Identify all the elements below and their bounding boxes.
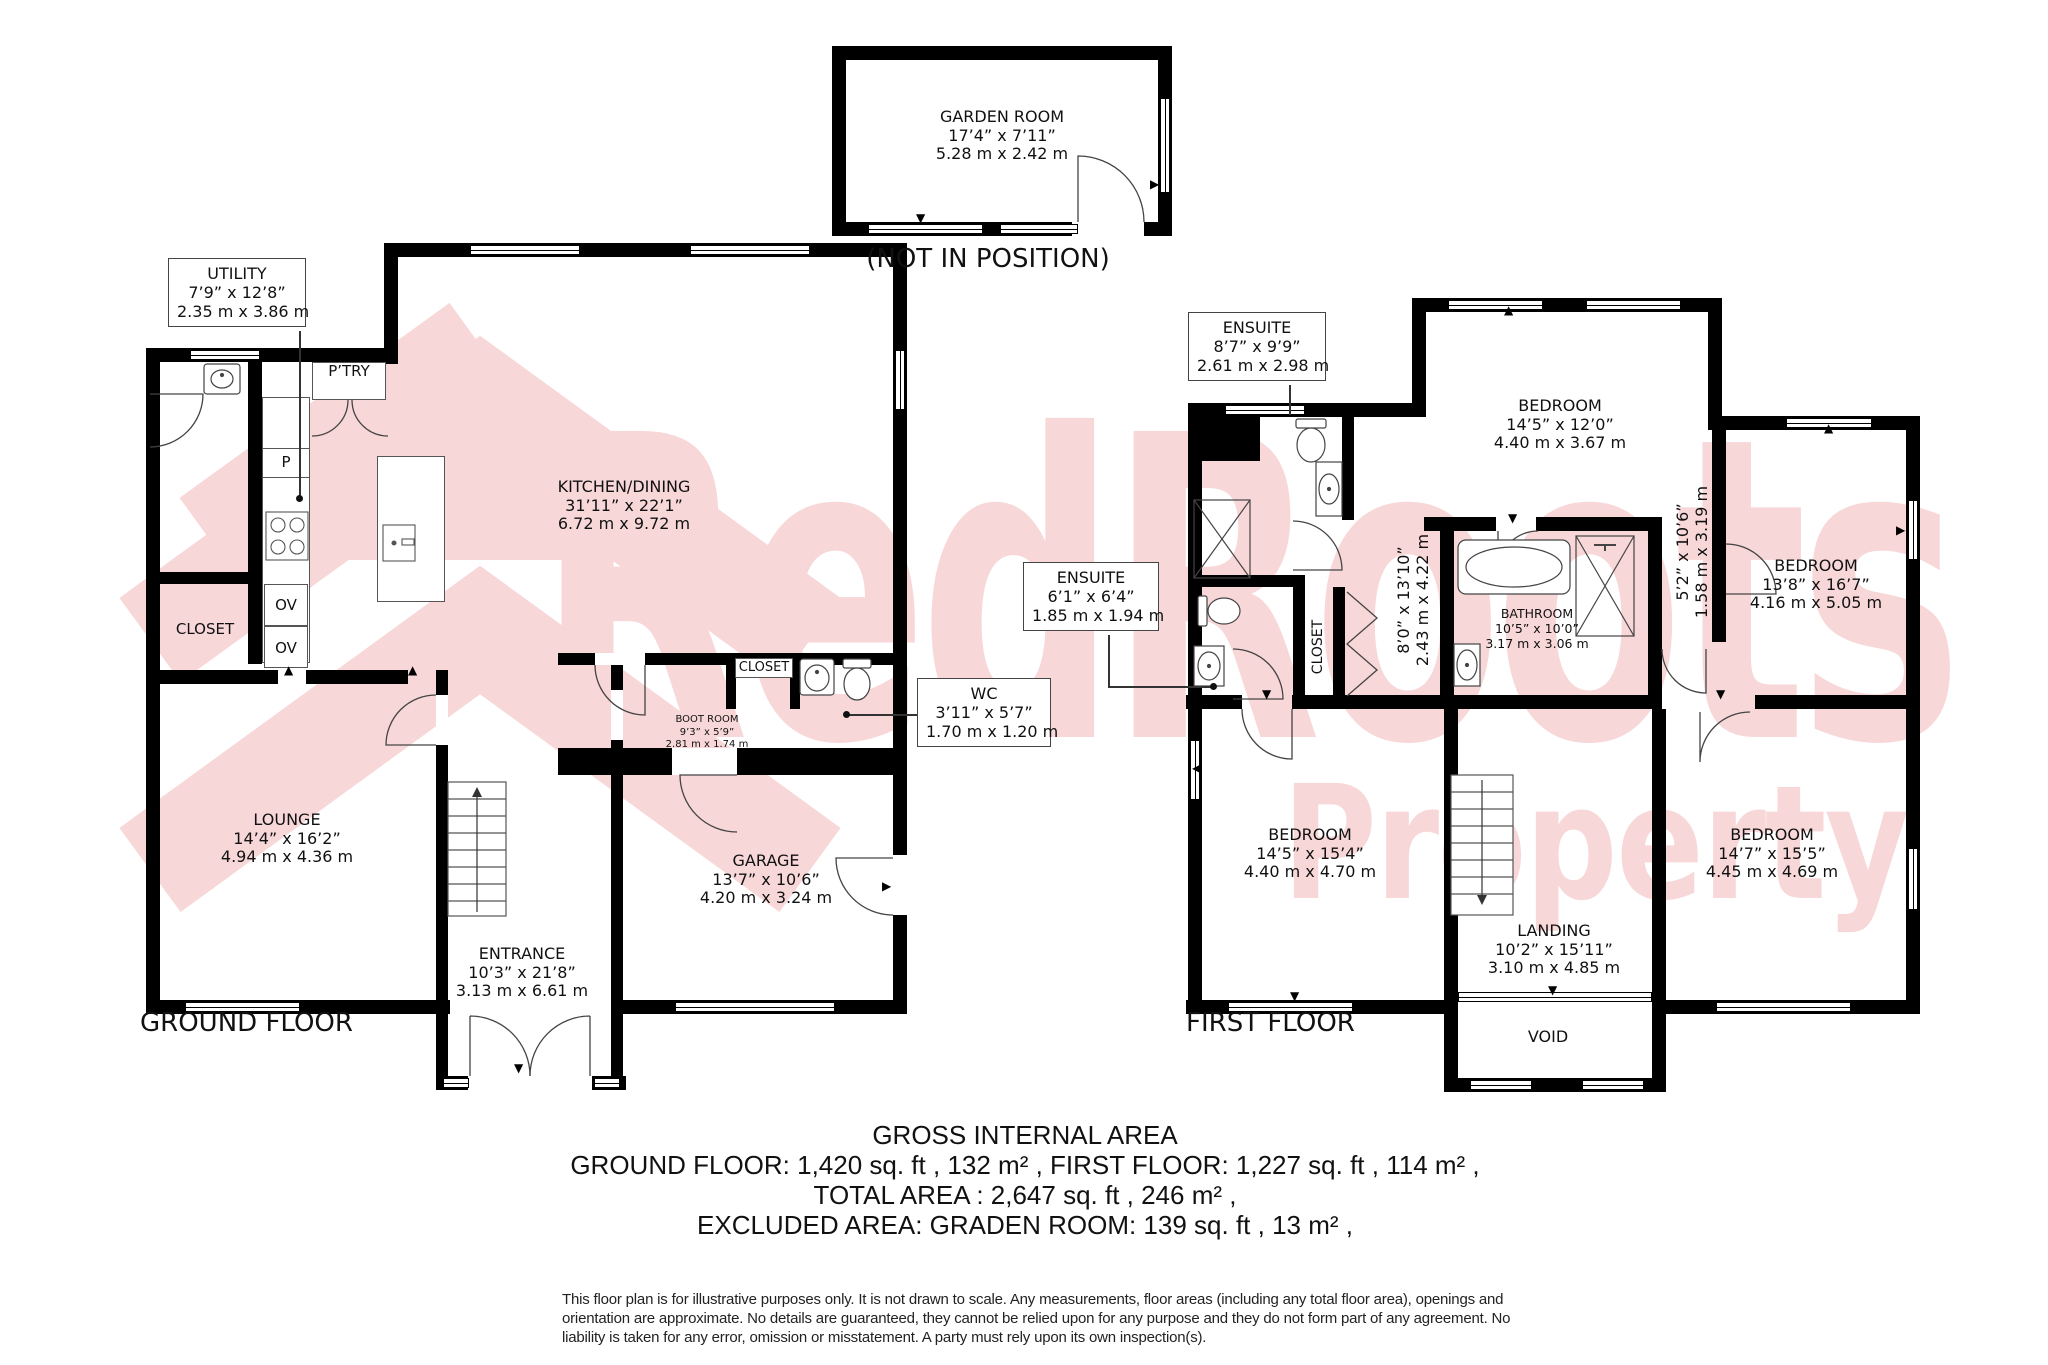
door-opening bbox=[611, 690, 623, 740]
callout-leader-line bbox=[849, 714, 917, 716]
callout-leader-line bbox=[1289, 385, 1291, 415]
callout-ensuite-top: ENSUITE 8’7” x 9’9” 2.61 m x 2.98 m bbox=[1188, 312, 1326, 381]
callout-leader-line bbox=[299, 331, 301, 497]
wall bbox=[893, 243, 907, 703]
wall bbox=[1424, 517, 1662, 531]
room-dims-imperial: 14’5” x 12’0” bbox=[1494, 416, 1626, 435]
opening-marker-icon: ▶ bbox=[1896, 524, 1905, 536]
wall bbox=[832, 46, 1172, 60]
wall bbox=[1412, 298, 1426, 417]
room-dims-imperial: 17’4” x 7’11” bbox=[936, 127, 1068, 146]
room-dims-metric: 3.10 m x 4.85 m bbox=[1488, 959, 1620, 978]
room-label-kitchen: KITCHEN/DINING 31’11” x 22’1” 6.72 m x 9… bbox=[558, 478, 691, 534]
room-name: LANDING bbox=[1488, 922, 1620, 941]
wall bbox=[1454, 695, 1656, 709]
room-dims-metric: 4.94 m x 4.36 m bbox=[221, 848, 353, 867]
not-in-position-note: (NOT IN POSITION) bbox=[866, 244, 1110, 274]
window bbox=[470, 245, 580, 255]
room-dims-imperial: 7’9” x 12’8” bbox=[177, 283, 297, 302]
window bbox=[190, 350, 260, 360]
room-name: GARAGE bbox=[700, 852, 832, 871]
window bbox=[1000, 224, 1078, 234]
opening-marker-icon: ▶ bbox=[1150, 178, 1159, 190]
room-dims-metric: 4.16 m x 5.05 m bbox=[1750, 594, 1882, 613]
window bbox=[675, 1002, 835, 1012]
room-dims-metric: 2.81 m x 1.74 m bbox=[666, 739, 749, 752]
room-dims-metric: 6.72 m x 9.72 m bbox=[558, 515, 691, 534]
wall bbox=[1292, 695, 1454, 709]
room-dims-metric: 4.40 m x 3.67 m bbox=[1494, 434, 1626, 453]
room-name: BEDROOM bbox=[1750, 557, 1882, 576]
room-name: WC bbox=[926, 684, 1042, 703]
room-dims-imperial: 10’2” x 15’11” bbox=[1488, 941, 1620, 960]
room-name: BATHROOM bbox=[1485, 606, 1588, 621]
staircase-ground bbox=[448, 782, 506, 916]
room-label-entrance: ENTRANCE 10’3” x 21’8” 3.13 m x 6.61 m bbox=[456, 945, 588, 1001]
room-label-hall: 8’0” x 13’10” 2.43 m x 4.22 m bbox=[1394, 534, 1432, 666]
window bbox=[1448, 300, 1543, 310]
floor-title-ground: GROUND FLOOR bbox=[140, 1008, 353, 1038]
callout-wc: WC 3’11” x 5’7” 1.70 m x 1.20 m bbox=[917, 678, 1051, 747]
room-dims-imperial: 14’7” x 15’5” bbox=[1706, 845, 1838, 864]
room-label-nook: 5’2” x 10’6” 1.58 m x 3.19 m bbox=[1673, 486, 1711, 618]
wall bbox=[1440, 517, 1454, 709]
opening-marker-icon: ▲ bbox=[284, 664, 293, 676]
opening-marker-icon: ◀ bbox=[1192, 762, 1201, 774]
room-dims-imperial: 3’11” x 5’7” bbox=[926, 703, 1042, 722]
room-dims-metric: 2.35 m x 3.86 m bbox=[177, 302, 297, 321]
summary-line-3: EXCLUDED AREA: GRADEN ROOM: 139 sq. ft ,… bbox=[400, 1210, 1650, 1240]
wall bbox=[1194, 417, 1260, 461]
room-name: BEDROOM bbox=[1706, 826, 1838, 845]
room-dims-metric: 4.40 m x 4.70 m bbox=[1244, 863, 1376, 882]
summary-line-2: TOTAL AREA : 2,647 sq. ft , 246 m² , bbox=[400, 1180, 1650, 1210]
wall bbox=[1186, 695, 1242, 709]
wall bbox=[1342, 403, 1354, 520]
disclaimer-text: This floor plan is for illustrative purp… bbox=[562, 1290, 1534, 1347]
door-opening bbox=[595, 653, 645, 665]
wall bbox=[146, 348, 398, 362]
room-dims-imperial: 14’4” x 16’2” bbox=[221, 830, 353, 849]
room-dims-imperial: 10’5” x 10’0” bbox=[1485, 621, 1588, 636]
room-dims-imperial: 8’0” x 13’10” bbox=[1394, 534, 1413, 666]
room-label-garden-room: GARDEN ROOM 17’4” x 7’11” 5.28 m x 2.42 … bbox=[936, 108, 1068, 164]
wall bbox=[146, 670, 278, 684]
opening-marker-icon: ▲ bbox=[600, 752, 609, 764]
opening-marker-icon: ▼ bbox=[514, 1062, 523, 1074]
room-dims-metric: 1.70 m x 1.20 m bbox=[926, 722, 1042, 741]
opening-marker-icon: ▲ bbox=[1824, 422, 1833, 434]
floorplan-canvas: RedRoots Property GARDEN ROOM 17’4” x 7’… bbox=[0, 0, 2048, 1365]
callout-leader-line bbox=[1108, 635, 1110, 688]
window bbox=[1908, 500, 1918, 560]
room-name: LOUNGE bbox=[221, 811, 353, 830]
wall bbox=[1648, 517, 1662, 709]
door-opening bbox=[468, 1076, 592, 1090]
wall bbox=[1755, 695, 1906, 709]
callout-leader-dot bbox=[1210, 683, 1217, 690]
room-label-bedroom-right: BEDROOM 13’8” x 16’7” 4.16 m x 5.05 m bbox=[1750, 557, 1882, 613]
room-label-ov: OV bbox=[275, 597, 297, 614]
room-label-lounge: LOUNGE 14’4” x 16’2” 4.94 m x 4.36 m bbox=[221, 811, 353, 867]
floor-title-first: FIRST FLOOR bbox=[1186, 1008, 1355, 1038]
window bbox=[1470, 1080, 1532, 1090]
room-dims-imperial: 8’7” x 9’9” bbox=[1197, 337, 1317, 356]
room-dims-metric: 4.45 m x 4.69 m bbox=[1706, 863, 1838, 882]
room-dims-metric: 3.13 m x 6.61 m bbox=[456, 982, 588, 1001]
room-dims-imperial: 5’2” x 10’6” bbox=[1673, 486, 1692, 618]
wall bbox=[1293, 587, 1305, 699]
window bbox=[895, 350, 905, 410]
wall bbox=[384, 243, 398, 364]
room-label-pantry: P’TRY bbox=[328, 363, 370, 380]
window bbox=[1716, 1002, 1851, 1012]
room-name: BEDROOM bbox=[1244, 826, 1376, 845]
wall bbox=[1188, 575, 1305, 587]
window bbox=[868, 224, 983, 234]
room-name: BEDROOM bbox=[1494, 397, 1626, 416]
room-dims-metric: 2.61 m x 2.98 m bbox=[1197, 356, 1317, 375]
room-dims-metric: 5.28 m x 2.42 m bbox=[936, 145, 1068, 164]
door-opening bbox=[1072, 222, 1144, 236]
room-name: ENSUITE bbox=[1032, 568, 1150, 587]
wall bbox=[384, 243, 907, 257]
room-dims-metric: 3.17 m x 3.06 m bbox=[1485, 636, 1588, 651]
room-name: GARDEN ROOM bbox=[936, 108, 1068, 127]
room-dims-imperial: 13’7” x 10’6” bbox=[700, 871, 832, 890]
utility-sink bbox=[204, 364, 240, 394]
summary-line-1: GROUND FLOOR: 1,420 sq. ft , 132 m² , FI… bbox=[400, 1150, 1650, 1180]
door-opening bbox=[436, 695, 448, 745]
wall bbox=[248, 362, 262, 664]
room-label-closet2: CLOSET bbox=[739, 660, 790, 676]
room-label-landing: LANDING 10’2” x 15’11” 3.10 m x 4.85 m bbox=[1488, 922, 1620, 978]
room-dims-metric: 1.85 m x 1.94 m bbox=[1032, 606, 1150, 625]
opening-marker-icon: ▼ bbox=[916, 212, 925, 224]
opening-marker-icon: ▼ bbox=[1262, 688, 1271, 700]
window bbox=[1908, 848, 1918, 910]
door-opening bbox=[893, 855, 907, 915]
kitchen-island bbox=[377, 456, 445, 602]
room-dims-imperial: 9’3” x 5’9” bbox=[666, 727, 749, 740]
room-label-boot-room: BOOT ROOM 9’3” x 5’9” 2.81 m x 1.74 m bbox=[666, 714, 749, 752]
opening-marker-icon: ◀ bbox=[150, 714, 159, 726]
callout-leader-dot bbox=[843, 711, 850, 718]
room-name: ENSUITE bbox=[1197, 318, 1317, 337]
opening-marker-icon: ▲ bbox=[408, 664, 417, 676]
room-label-bedroom-bottom-left: BEDROOM 14’5” x 15’4” 4.40 m x 4.70 m bbox=[1244, 826, 1376, 882]
wall bbox=[146, 572, 262, 584]
window bbox=[443, 1078, 469, 1088]
room-label-p: P bbox=[281, 454, 290, 471]
room-name: UTILITY bbox=[177, 264, 297, 283]
room-label-garage: GARAGE 13’7” x 10’6” 4.20 m x 3.24 m bbox=[700, 852, 832, 908]
wall bbox=[1652, 709, 1666, 1000]
room-name: KITCHEN/DINING bbox=[558, 478, 691, 497]
room-dims-imperial: 10’3” x 21’8” bbox=[456, 964, 588, 983]
room-label-bathroom: BATHROOM 10’5” x 10’0” 3.17 m x 3.06 m bbox=[1485, 606, 1588, 651]
wall bbox=[306, 670, 408, 684]
room-dims-metric: 4.20 m x 3.24 m bbox=[700, 889, 832, 908]
area-summary: GROSS INTERNAL AREA GROUND FLOOR: 1,420 … bbox=[400, 1120, 1650, 1240]
room-label-closet-ff: CLOSET bbox=[1310, 620, 1326, 674]
wall bbox=[1333, 587, 1345, 699]
room-label-closet: CLOSET bbox=[176, 621, 234, 638]
wall bbox=[1708, 298, 1722, 430]
room-dims-imperial: 6’1” x 6’4” bbox=[1032, 587, 1150, 606]
room-label-bedroom-bottom-right: BEDROOM 14’7” x 15’5” 4.45 m x 4.69 m bbox=[1706, 826, 1838, 882]
window bbox=[1160, 98, 1170, 193]
summary-title: GROSS INTERNAL AREA bbox=[400, 1120, 1650, 1150]
wall bbox=[1444, 695, 1458, 1000]
room-label-void: VOID bbox=[1528, 1028, 1568, 1047]
callout-leader-line bbox=[1108, 686, 1214, 688]
room-dims-imperial: 31’11” x 22’1” bbox=[558, 497, 691, 516]
room-dims-metric: 1.58 m x 3.19 m bbox=[1692, 486, 1711, 618]
window bbox=[1586, 300, 1681, 310]
door-opening bbox=[672, 748, 737, 775]
opening-marker-icon: ▼ bbox=[1508, 512, 1517, 524]
window bbox=[1582, 1080, 1644, 1090]
window bbox=[690, 245, 810, 255]
opening-marker-icon: ▶ bbox=[882, 880, 891, 892]
opening-marker-icon: ▼ bbox=[1716, 688, 1725, 700]
callout-utility: UTILITY 7’9” x 12’8” 2.35 m x 3.86 m bbox=[168, 258, 306, 327]
window bbox=[1225, 405, 1305, 415]
window bbox=[594, 1078, 620, 1088]
room-name: BOOT ROOM bbox=[666, 714, 749, 727]
wall bbox=[1712, 430, 1726, 642]
room-dims-imperial: 14’5” x 15’4” bbox=[1244, 845, 1376, 864]
callout-ensuite-mid: ENSUITE 6’1” x 6’4” 1.85 m x 1.94 m bbox=[1023, 562, 1159, 631]
room-dims-imperial: 13’8” x 16’7” bbox=[1750, 576, 1882, 595]
opening-marker-icon: ▼ bbox=[1548, 984, 1557, 996]
room-dims-metric: 2.43 m x 4.22 m bbox=[1413, 534, 1432, 666]
callout-leader-dot bbox=[296, 495, 303, 502]
opening-marker-icon: ▼ bbox=[1290, 990, 1299, 1002]
room-label-ov: OV bbox=[275, 640, 297, 657]
room-label-bedroom-top: BEDROOM 14’5” x 12’0” 4.40 m x 3.67 m bbox=[1494, 397, 1626, 453]
opening-marker-icon: ◀ bbox=[836, 131, 845, 143]
opening-marker-icon: ▲ bbox=[1504, 304, 1513, 316]
room-name: ENTRANCE bbox=[456, 945, 588, 964]
